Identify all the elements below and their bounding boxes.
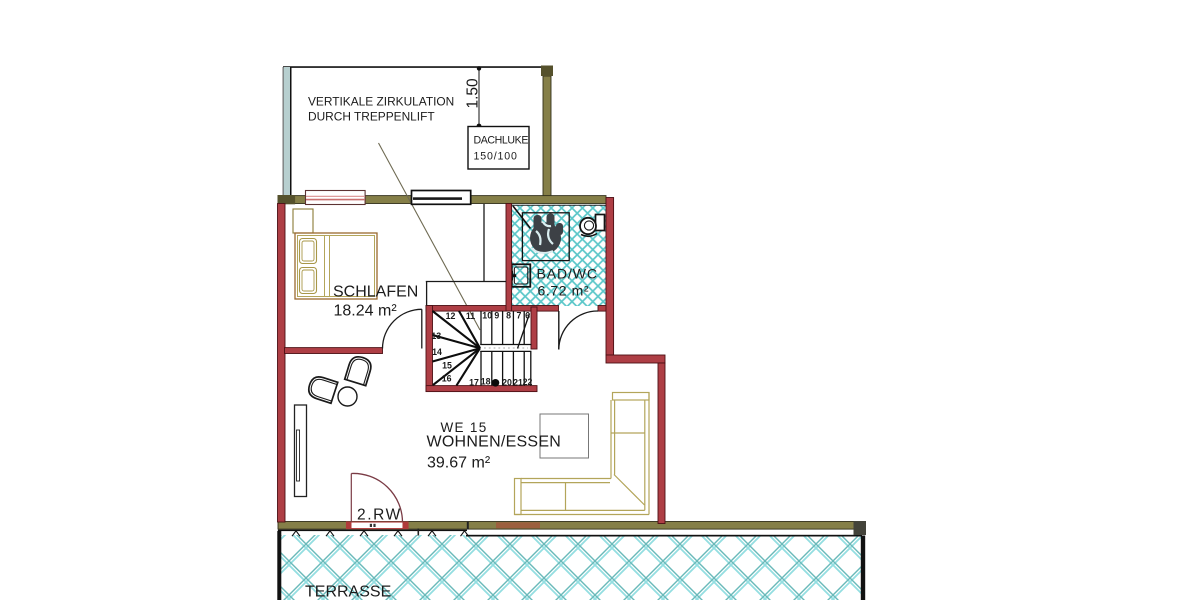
svg-text:21: 21	[513, 378, 523, 388]
svg-text:10: 10	[482, 311, 492, 321]
svg-text:SCHLAFEN: SCHLAFEN	[333, 284, 418, 301]
svg-text:20: 20	[502, 378, 512, 388]
svg-text:VERTIKALE ZIRKULATION: VERTIKALE ZIRKULATION	[308, 94, 454, 108]
svg-text:39.67 m²: 39.67 m²	[427, 455, 491, 472]
svg-text:18: 18	[481, 377, 491, 387]
svg-text:6.72 m²: 6.72 m²	[538, 283, 590, 299]
svg-text:13: 13	[431, 331, 441, 341]
svg-text:150/100: 150/100	[474, 151, 518, 163]
svg-text:12: 12	[446, 311, 456, 321]
svg-text:2.RW: 2.RW	[357, 507, 402, 524]
svg-text:8: 8	[506, 311, 511, 321]
svg-text:BAD/WC: BAD/WC	[537, 266, 598, 282]
svg-text:9: 9	[494, 311, 499, 321]
svg-text:17: 17	[469, 378, 479, 388]
svg-text:15: 15	[442, 360, 452, 370]
svg-text:18.24 m²: 18.24 m²	[334, 303, 398, 320]
svg-text:DURCH TREPPENLIFT: DURCH TREPPENLIFT	[308, 110, 435, 124]
svg-text:16: 16	[442, 374, 452, 384]
svg-text:TERRASSE: TERRASSE	[305, 584, 391, 600]
svg-text:6: 6	[525, 311, 530, 321]
svg-text:22: 22	[523, 377, 533, 387]
svg-text:7: 7	[516, 311, 521, 321]
svg-text:WOHNEN/ESSEN: WOHNEN/ESSEN	[427, 434, 562, 451]
svg-text:DACHLUKE: DACHLUKE	[474, 135, 529, 147]
svg-text:14: 14	[432, 347, 442, 357]
svg-text:11: 11	[466, 311, 475, 321]
svg-text:1.50: 1.50	[465, 78, 482, 109]
